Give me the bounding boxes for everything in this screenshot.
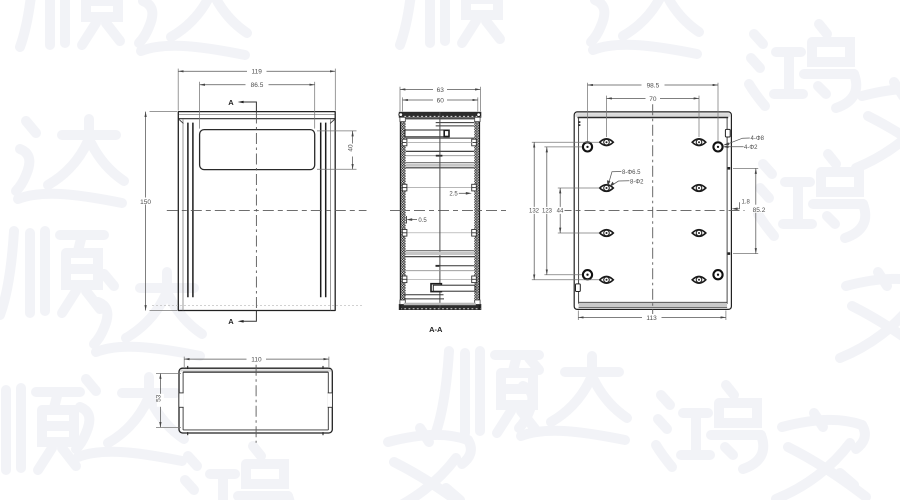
svg-text:119: 119 (252, 69, 263, 76)
svg-text:1.8: 1.8 (742, 199, 751, 205)
svg-text:85.2: 85.2 (753, 207, 766, 214)
svg-text:60: 60 (437, 97, 445, 104)
svg-text:A: A (228, 98, 234, 107)
svg-text:150: 150 (140, 199, 151, 206)
svg-text:98.5: 98.5 (647, 82, 660, 89)
svg-text:4-Φ8: 4-Φ8 (751, 136, 765, 142)
svg-text:A: A (228, 317, 234, 326)
svg-text:113: 113 (646, 315, 657, 322)
svg-text:44: 44 (557, 209, 564, 215)
svg-text:70: 70 (649, 96, 657, 103)
svg-text:123: 123 (542, 209, 553, 215)
svg-text:110: 110 (251, 357, 262, 364)
svg-text:8-Φ6.5: 8-Φ6.5 (622, 170, 641, 176)
svg-text:63: 63 (437, 87, 445, 94)
svg-text:40: 40 (348, 144, 355, 152)
svg-text:53: 53 (155, 394, 162, 402)
svg-text:86.5: 86.5 (251, 82, 264, 89)
svg-text:132: 132 (529, 209, 540, 215)
svg-text:2.5: 2.5 (449, 192, 458, 198)
svg-text:0.5: 0.5 (418, 218, 427, 224)
svg-text:A-A: A-A (429, 325, 443, 334)
svg-text:4-Φ2: 4-Φ2 (744, 145, 758, 151)
svg-text:8-Φ2: 8-Φ2 (630, 179, 644, 185)
